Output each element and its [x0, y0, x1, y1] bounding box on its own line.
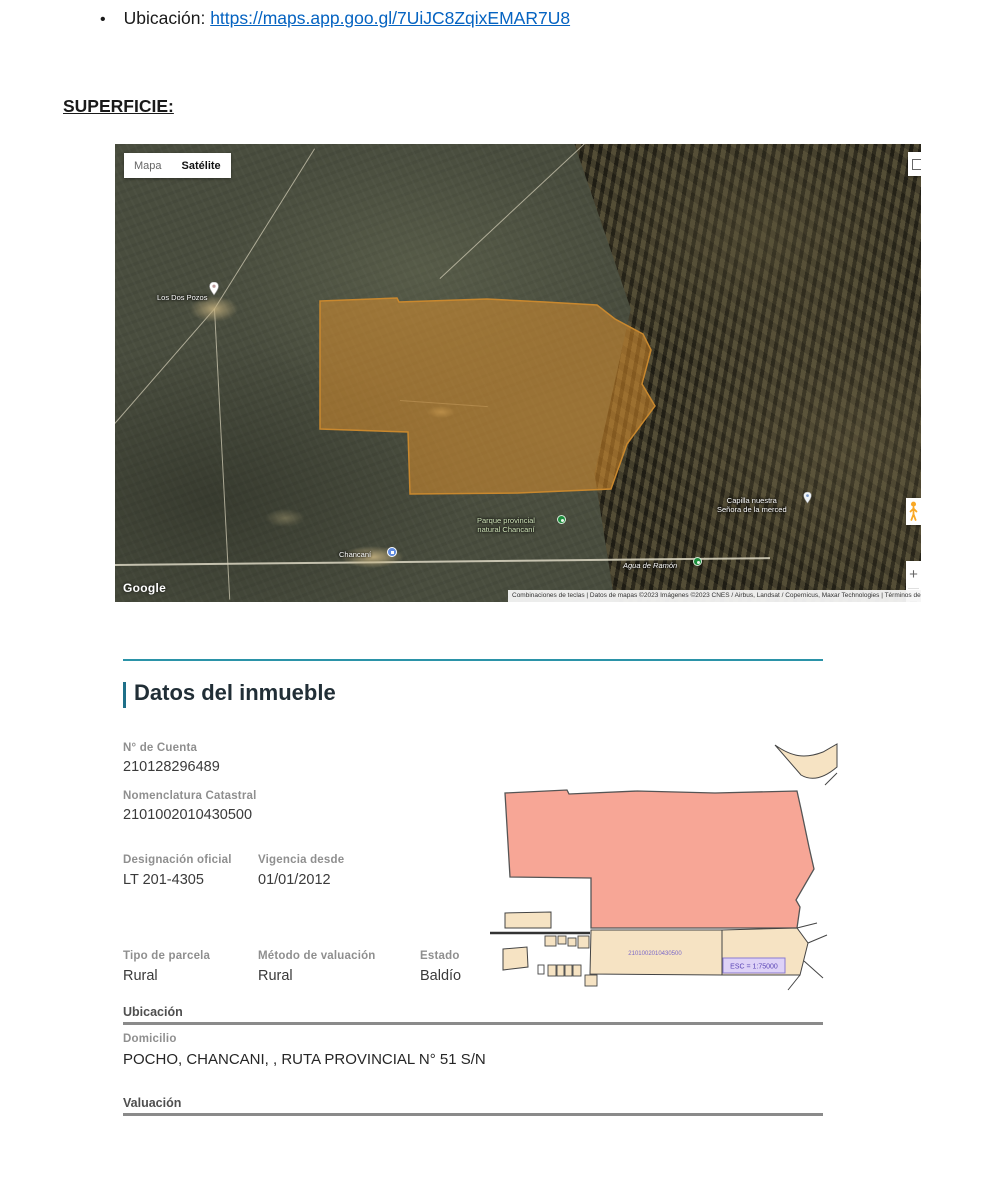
satellite-button[interactable]: Satélite	[172, 160, 231, 172]
map-label-agua: Agua de Ramón	[623, 561, 677, 570]
superficie-heading: SUPERFICIE:	[63, 96, 174, 117]
white-pin-icon	[209, 282, 219, 296]
pegman-button[interactable]	[906, 498, 921, 525]
tipo-label: Tipo de parcela	[123, 950, 210, 962]
tipo-value: Rural	[123, 968, 158, 984]
subject-parcel-shape	[505, 790, 814, 928]
domicilio-label: Domicilio	[123, 1033, 177, 1045]
map-label-parque: Parque provincial natural Chancaní	[477, 516, 535, 534]
pegman-icon	[908, 501, 919, 522]
nomenclatura-value: 2101002010430500	[123, 807, 252, 823]
map-screenshot: Los Dos Pozos Parque provincial natural …	[115, 144, 921, 602]
maps-hyperlink[interactable]: https://maps.app.goo.gl/7UiJC8ZqixEMAR7U…	[210, 8, 570, 28]
map-label-capilla: Capilla nuestra Señora de la merced	[717, 496, 787, 514]
cuenta-label: N° de Cuenta	[123, 742, 197, 754]
scale-text: ESC = 1:75000	[730, 964, 778, 971]
metodo-label: Método de valuación	[258, 950, 376, 962]
domicilio-value: POCHO, CHANCANI, , RUTA PROVINCIAL N° 51…	[123, 1051, 486, 1068]
map-type-toggle: Mapa Satélite	[124, 153, 231, 178]
parcel-number-text: 2101002010430500	[628, 951, 682, 957]
vigencia-value: 01/01/2012	[258, 872, 331, 888]
cuenta-value: 210128296489	[123, 759, 220, 775]
estado-label: Estado	[420, 950, 460, 962]
town-marker-icon	[387, 547, 397, 557]
section-rule	[123, 1113, 823, 1116]
map-button[interactable]: Mapa	[124, 160, 172, 172]
ubicacion-label: Ubicación:	[124, 8, 211, 28]
white-pin-icon	[803, 492, 812, 504]
neighbor-parcel	[775, 744, 837, 778]
card-top-rule	[123, 659, 823, 661]
zoom-in-button[interactable]: +	[906, 561, 921, 588]
neighbor-parcel	[505, 912, 551, 928]
fullscreen-button[interactable]	[908, 152, 921, 176]
map-attribution: Combinaciones de teclas | Datos de mapas…	[508, 590, 921, 602]
park-marker-icon	[693, 557, 702, 566]
cadastral-parcel-diagram: 2101002010430500 ESC = 1:75000	[487, 737, 839, 1000]
nomenclatura-label: Nomenclatura Catastral	[123, 790, 257, 802]
ubicacion-bullet-line: •Ubicación: https://maps.app.goo.gl/7UiJ…	[100, 8, 570, 29]
designacion-label: Designación oficial	[123, 854, 232, 866]
metodo-value: Rural	[258, 968, 293, 984]
map-label-los-dos-pozos: Los Dos Pozos	[157, 293, 207, 302]
card-title: Datos del inmueble	[134, 680, 336, 706]
heading-accent-bar	[123, 682, 126, 708]
section-rule	[123, 1022, 823, 1025]
park-marker-icon	[557, 515, 566, 524]
map-label-town: Chancaní	[339, 550, 371, 559]
valuacion-section-header: Valuación	[123, 1096, 181, 1110]
vigencia-label: Vigencia desde	[258, 854, 344, 866]
estado-value: Baldío	[420, 968, 461, 984]
bullet-icon: •	[100, 11, 106, 28]
ubicacion-section-header: Ubicación	[123, 1005, 183, 1019]
designacion-value: LT 201-4305	[123, 872, 204, 888]
google-logo: Google	[123, 581, 166, 595]
neighbor-parcel	[503, 947, 528, 970]
